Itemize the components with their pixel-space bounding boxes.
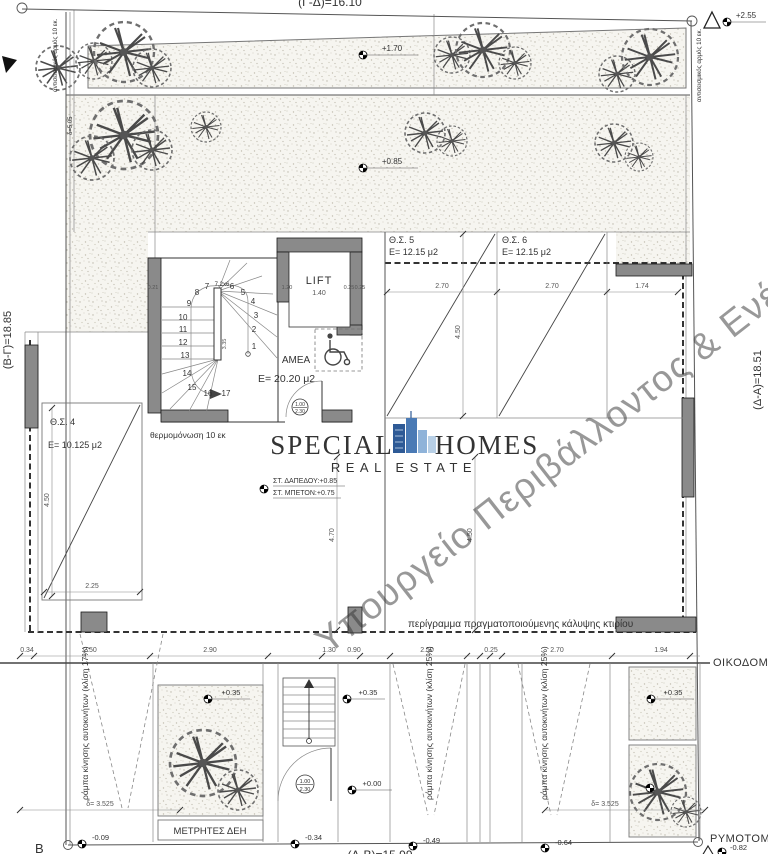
- level-m049: -0.49: [423, 836, 440, 845]
- level-035-b: +0.35: [359, 688, 378, 697]
- stair-step-number: 16: [204, 389, 213, 398]
- dim-025-c: 0.25: [484, 647, 498, 654]
- dim-290: 2.90: [203, 647, 217, 654]
- boundary-bottom-label: (Α-Β)=15.99: [347, 848, 412, 854]
- level-255: +2.55: [736, 11, 757, 20]
- dim-335: 3.35: [222, 339, 228, 350]
- level-m034: -0.34: [305, 833, 322, 842]
- brand-subtitle: REAL ESTATE: [331, 460, 477, 475]
- wall-top-right: [616, 264, 692, 276]
- stair-step-number: 10: [179, 313, 188, 322]
- lift-width-dim: 1.40: [312, 290, 326, 297]
- level-085: +0.85: [382, 157, 403, 166]
- ramp-label-left: ράμπα κίνησης αυτοκινήτων (κλίση 17%): [80, 646, 90, 800]
- dim-034: 0.34: [20, 647, 34, 654]
- meters-label: ΜΕΤΡΗΤΕΣ ΔΕΗ: [174, 826, 247, 837]
- dim-270-b: 2.70: [545, 283, 559, 290]
- level-170: +1.70: [382, 44, 403, 53]
- parking4-area: E= 10.125 μ2: [48, 440, 102, 450]
- concrete-level-label: ΣΤ. ΜΠΕΤΟΝ:+0.75: [273, 490, 335, 497]
- level-035-a: +0.35: [222, 688, 241, 697]
- stair-step-number: 11: [179, 325, 188, 334]
- ramp-span-left: δ= 3.525: [86, 801, 114, 808]
- dim-270-c: 2.70: [550, 647, 564, 654]
- dim-025-a: 0.25: [344, 285, 355, 291]
- stair-step-number: 14: [183, 369, 192, 378]
- stair-step-number: 5: [241, 288, 246, 297]
- parking6-area: E= 12.15 μ2: [502, 247, 551, 257]
- corner-b-label: Β: [35, 841, 44, 854]
- dim-450-a: 4.50: [455, 325, 462, 339]
- stair-step-number: 4: [251, 297, 256, 306]
- stair-step-number: 3: [254, 311, 259, 320]
- column-right: [682, 398, 694, 497]
- floor-plan-drawing: 7,2x6 1 2 3 4 5 6 7 8 9 10 11 12 13 14 1…: [0, 0, 768, 854]
- coverage-note: περίγραμμα πραγματοποιούμενης κάλυψης κτ…: [408, 618, 633, 630]
- stair-step-number: 7: [205, 282, 210, 291]
- stair-step-number: 1: [252, 342, 257, 351]
- stair-step-number: 12: [179, 338, 188, 347]
- level-m064: -0.64: [555, 838, 572, 847]
- dim-021: 0.21: [148, 285, 159, 291]
- delta-top-note: δ=5.05: [68, 116, 74, 135]
- stair-step-number: 2: [252, 325, 257, 334]
- door-height: 2.30: [295, 409, 305, 415]
- ramp-label-right: ράμπα κίνησης αυτοκινήτων (κλίση 25%): [539, 646, 549, 800]
- brand-word-special: SPECIAL: [270, 430, 394, 460]
- floor-level-label: ΣΤ. ΔΑΠΕΔΟΥ:+0.85: [273, 478, 337, 485]
- dim-120: 1.20: [282, 285, 293, 291]
- level-m082: -0.82: [730, 843, 747, 852]
- planter-right-top: [629, 667, 696, 740]
- boundary-top-label: (Γ-Δ)=16.10: [298, 0, 362, 9]
- seismic-joint-left: αντισεισμικός αρμός 10 εκ.: [52, 18, 59, 92]
- level-m009: -0.09: [92, 833, 109, 842]
- lobby-area-label: E= 20.20 μ2: [258, 373, 315, 385]
- ramp-label-mid: ράμπα κίνησης αυτοκινήτων (κλίση 25%): [424, 646, 434, 800]
- stair-step-number: 6: [230, 282, 235, 291]
- dim-225: 2.25: [85, 583, 99, 590]
- planter-spot-marker: [646, 784, 654, 792]
- parking6-name: Θ.Σ. 6: [502, 235, 527, 245]
- stair-step-number: 9: [187, 299, 192, 308]
- stair-step-number: 15: [188, 383, 197, 392]
- dim-270-a: 2.70: [435, 283, 449, 290]
- dim-025-b: 0.25: [355, 285, 366, 291]
- dim-470: 4.70: [329, 528, 336, 542]
- stair-step-number: 13: [181, 351, 190, 360]
- seismic-joint-right: αντισεισμικός αρμός 10 εκ.: [696, 28, 703, 102]
- dim-450-c: 4.50: [44, 493, 51, 507]
- stair-note: 7,2x6: [215, 282, 230, 288]
- stair-step-number: 17: [222, 389, 231, 398]
- boundary-right-label: (Δ-Α)=18.51: [752, 350, 764, 410]
- stair-step-number: 8: [195, 288, 200, 297]
- amea-label: ΑΜΕΑ: [282, 355, 311, 366]
- level-000: +0.00: [363, 779, 382, 788]
- insulation-note: θερμομόνωση 10 εκ: [150, 430, 226, 440]
- column-left: [25, 345, 38, 428]
- floor-level-spot-marker: [260, 485, 268, 493]
- parking5-name: Θ.Σ. 5: [389, 235, 414, 245]
- entry-stair-symbol: [283, 678, 335, 746]
- door-width: 1.00: [300, 779, 311, 785]
- dim-174: 1.74: [635, 283, 649, 290]
- ramp-span-right: δ= 3.525: [591, 801, 619, 808]
- dim-194: 1.94: [654, 647, 668, 654]
- column-bottom-left: [81, 612, 107, 632]
- oikodomiki-line-label: ΟΙΚΟΔΟΜΙΚΗ: [713, 657, 768, 669]
- boundary-left-label: (Β-Γ)=18.85: [2, 311, 14, 369]
- lobby-door-tag: 1.00 2.30: [292, 399, 308, 415]
- door-height: 2.30: [300, 787, 311, 793]
- parking5-area: E= 12.15 μ2: [389, 247, 438, 257]
- lift-label: LIFT: [306, 275, 333, 287]
- level-035-c: +0.35: [664, 688, 683, 697]
- parking4-name: Θ.Σ. 4: [50, 417, 75, 427]
- door-width: 1.00: [295, 402, 305, 408]
- brand-word-homes: HOMES: [435, 430, 540, 460]
